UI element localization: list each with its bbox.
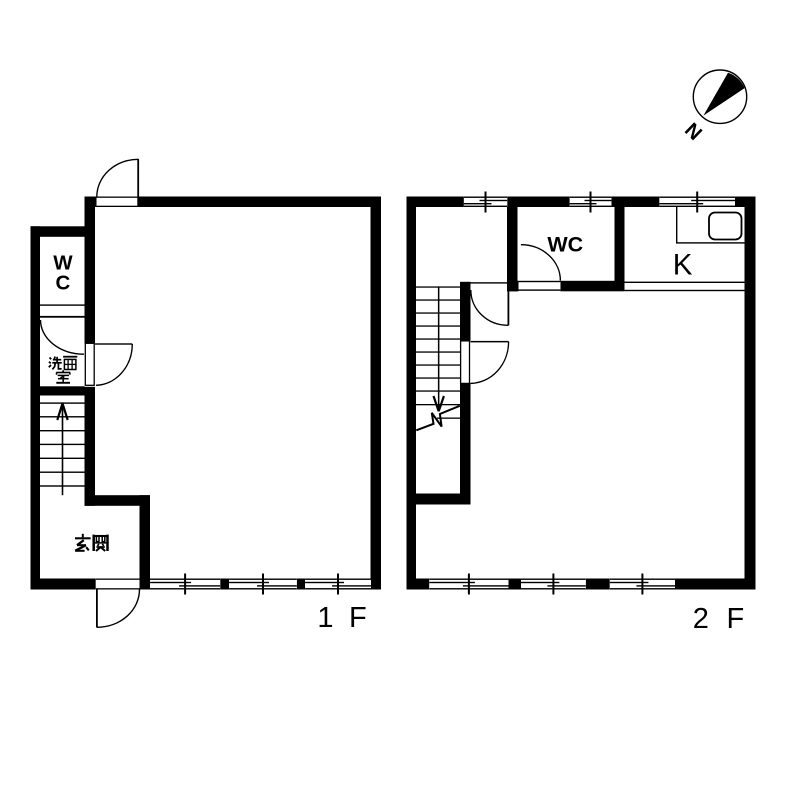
svg-text:2: 2 (693, 603, 709, 635)
svg-text:F: F (349, 602, 367, 634)
svg-text:F: F (726, 603, 744, 635)
svg-text:K: K (673, 249, 693, 282)
svg-text:1: 1 (317, 602, 333, 634)
svg-text:WC: WC (547, 232, 583, 256)
svg-text:C: C (55, 272, 70, 295)
